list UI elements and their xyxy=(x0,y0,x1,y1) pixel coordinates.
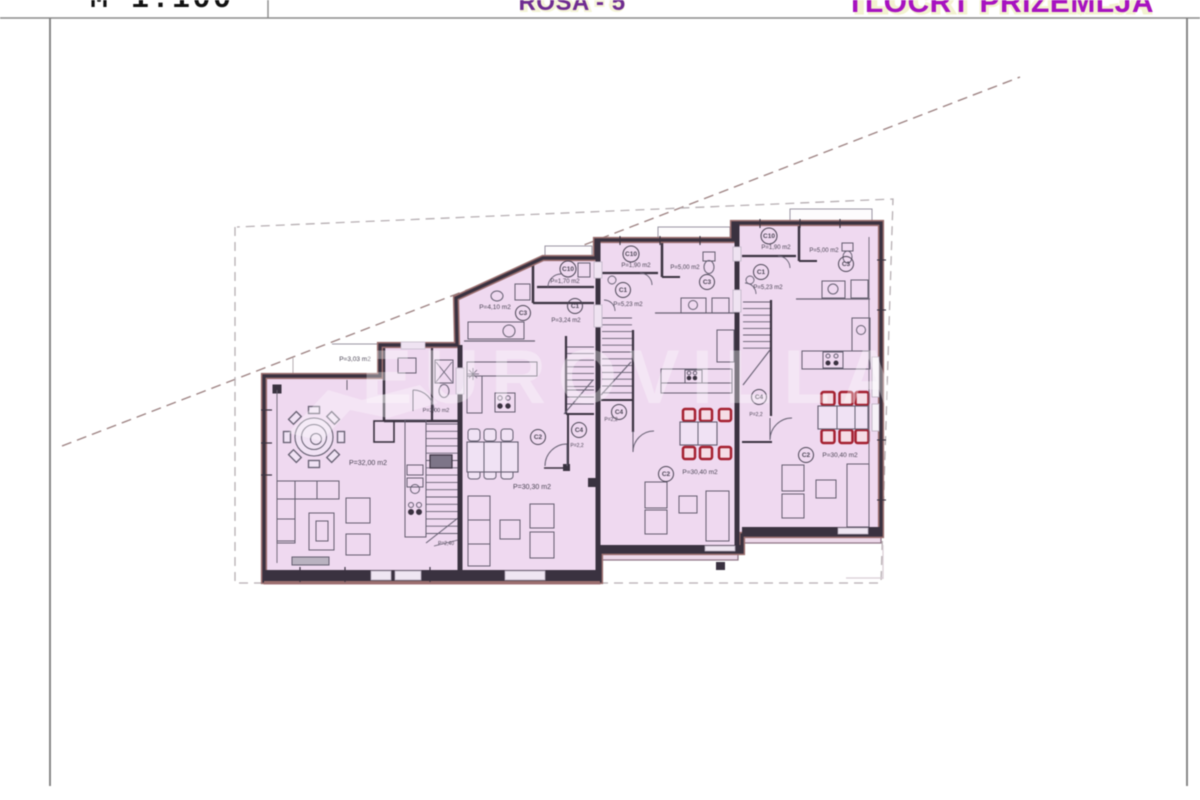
svg-text:P=5,23 m2: P=5,23 m2 xyxy=(753,285,783,291)
svg-text:P=30,30 m2: P=30,30 m2 xyxy=(513,484,551,491)
svg-text:P=1,90 m2: P=1,90 m2 xyxy=(761,245,791,251)
svg-text:P=2,2: P=2,2 xyxy=(570,443,583,449)
svg-text:C1: C1 xyxy=(757,269,766,276)
svg-text:P=2,40: P=2,40 xyxy=(438,541,454,547)
svg-text:P=5,00 m2: P=5,00 m2 xyxy=(809,248,839,254)
svg-text:P=32,00 m2: P=32,00 m2 xyxy=(349,460,387,467)
svg-text:C4: C4 xyxy=(575,427,584,434)
svg-text:C1: C1 xyxy=(619,287,628,294)
svg-text:C1: C1 xyxy=(571,303,580,310)
svg-text:P=1,90 m2: P=1,90 m2 xyxy=(621,263,651,269)
svg-text:C2: C2 xyxy=(534,434,543,441)
svg-text:EUROVILLA: EUROVILLA xyxy=(361,335,908,420)
svg-text:M 1:100: M 1:100 xyxy=(90,0,234,17)
svg-text:TLOCRT PRIZEMLJA: TLOCRT PRIZEMLJA xyxy=(846,0,1154,19)
svg-text:ROSA - 5: ROSA - 5 xyxy=(518,0,625,16)
svg-text:P=30,40 m2: P=30,40 m2 xyxy=(682,469,718,476)
svg-text:P=3,24 m2: P=3,24 m2 xyxy=(551,318,581,324)
svg-text:C10: C10 xyxy=(625,251,637,258)
svg-text:C3: C3 xyxy=(842,261,851,268)
svg-text:P=5,00 m2: P=5,00 m2 xyxy=(670,265,700,271)
svg-text:C3: C3 xyxy=(519,310,528,317)
svg-text:C2: C2 xyxy=(802,452,811,459)
svg-text:C3: C3 xyxy=(703,279,712,286)
svg-text:P=30,40 m2: P=30,40 m2 xyxy=(822,452,858,459)
svg-text:C10: C10 xyxy=(763,233,775,240)
svg-text:P=4,10 m2: P=4,10 m2 xyxy=(479,304,511,311)
svg-text:C10: C10 xyxy=(562,266,574,273)
svg-text:C2: C2 xyxy=(662,471,671,478)
svg-text:P=5,23 m2: P=5,23 m2 xyxy=(613,302,643,308)
svg-text:P=1,70 m2: P=1,70 m2 xyxy=(550,279,580,285)
